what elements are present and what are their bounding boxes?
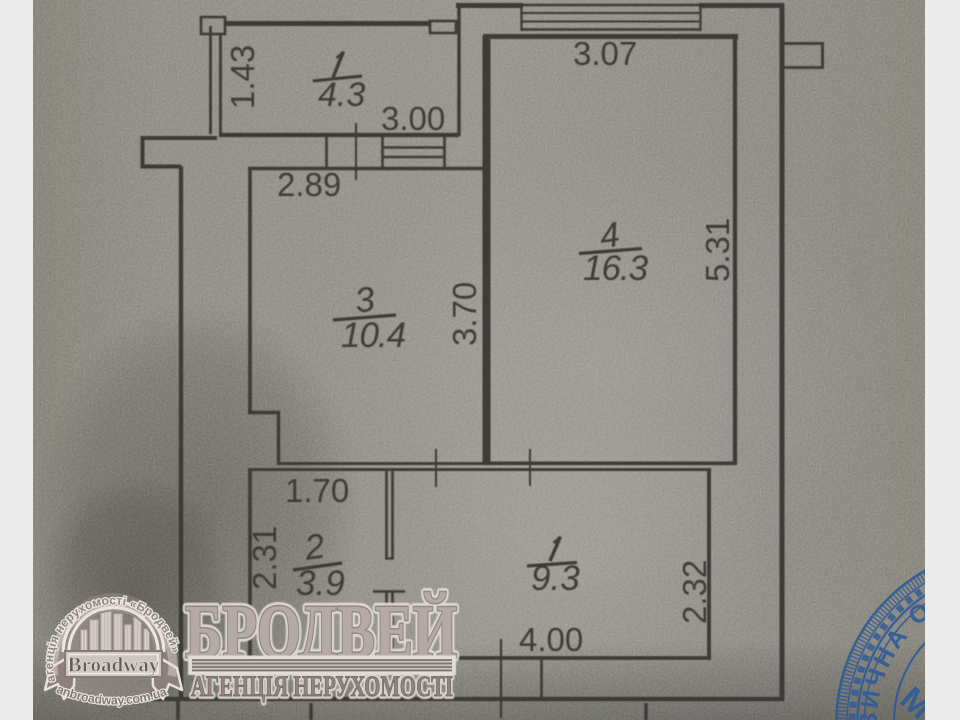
svg-text:16.3: 16.3 bbox=[583, 249, 649, 288]
svg-text:3.07: 3.07 bbox=[573, 35, 637, 72]
svg-text:3.70: 3.70 bbox=[446, 282, 483, 346]
svg-text:10.4: 10.4 bbox=[341, 316, 406, 355]
svg-text:4.00: 4.00 bbox=[519, 621, 583, 658]
svg-text:4.3: 4.3 bbox=[318, 76, 365, 114]
svg-text:1.70: 1.70 bbox=[285, 472, 349, 509]
svg-text:5.31: 5.31 bbox=[699, 218, 736, 282]
svg-text:АГЕНЦІЯ НЕРУХОМОСТІ: АГЕНЦІЯ НЕРУХОМОСТІ bbox=[191, 670, 453, 703]
svg-text:1.43: 1.43 bbox=[224, 45, 261, 109]
svg-text:2.31: 2.31 bbox=[246, 526, 283, 590]
svg-text:Broadway: Broadway bbox=[68, 653, 160, 677]
svg-text:3.00: 3.00 bbox=[381, 100, 445, 137]
svg-text:2.32: 2.32 bbox=[676, 560, 713, 624]
svg-text:2.89: 2.89 bbox=[277, 166, 341, 203]
